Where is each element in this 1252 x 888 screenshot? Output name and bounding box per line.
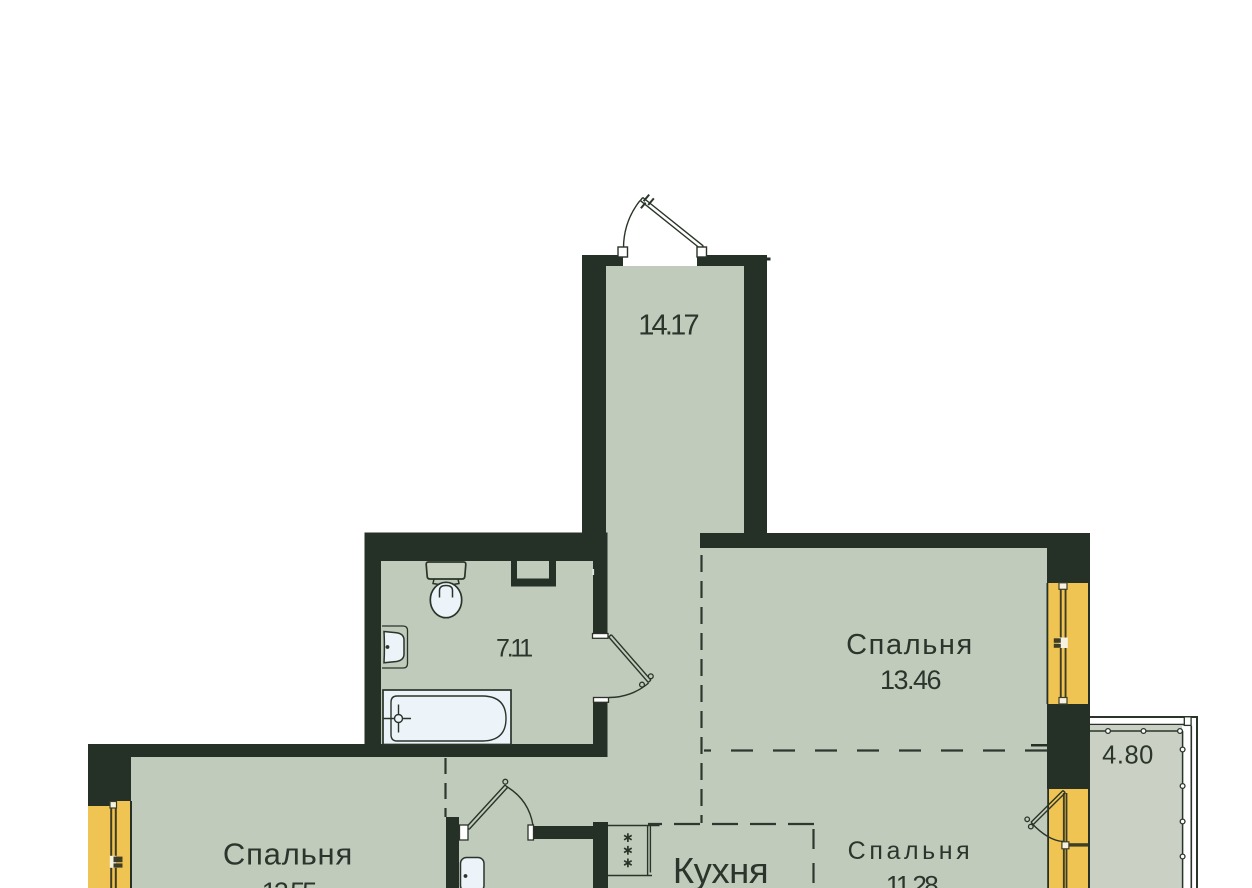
svg-text:Спальня: Спальня <box>223 836 353 871</box>
svg-text:4.80: 4.80 <box>1102 742 1154 770</box>
svg-text:Спальня: Спальня <box>846 629 974 661</box>
svg-text:7.11: 7.11 <box>496 635 532 663</box>
svg-text:11.28: 11.28 <box>886 870 938 888</box>
svg-text:Спальня: Спальня <box>848 837 974 865</box>
svg-text:14.17: 14.17 <box>638 310 698 342</box>
svg-text:Кухня: Кухня <box>673 850 768 888</box>
svg-text:12.55: 12.55 <box>262 877 317 888</box>
svg-text:13.46: 13.46 <box>880 665 941 695</box>
